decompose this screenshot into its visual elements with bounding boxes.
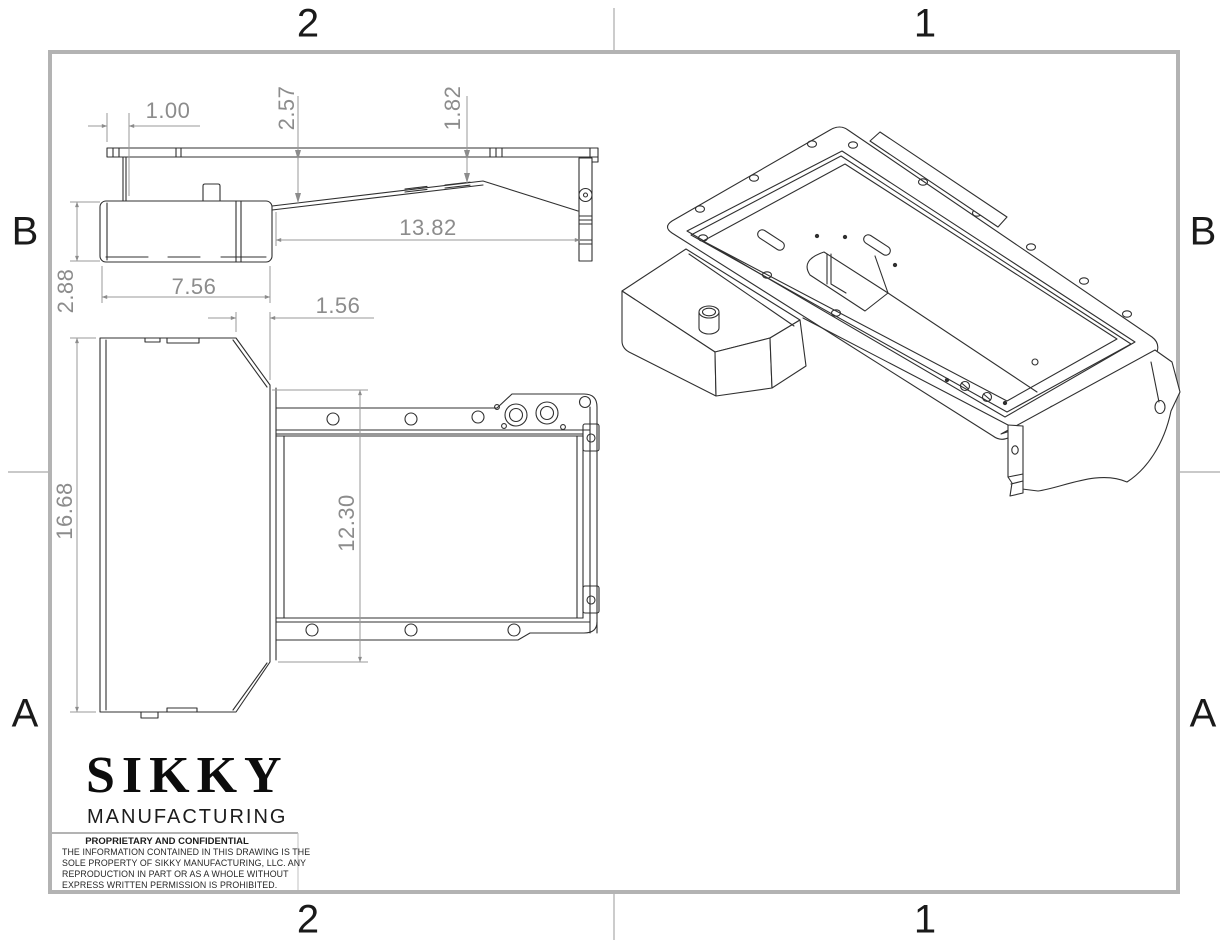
notice-line: THE INFORMATION CONTAINED IN THIS DRAWIN… (62, 847, 310, 858)
zone-label-left-a: A (12, 692, 39, 737)
dim-1-82: 1.82 (440, 86, 466, 131)
drawing-sheet: 2 1 2 1 B A B A 1.00 2.57 1.82 13.82 2.8… (0, 0, 1228, 948)
isometric-view (622, 127, 1180, 496)
dim-1-56: 1.56 (316, 293, 361, 319)
zone-label-top-2: 2 (297, 2, 319, 47)
mount-bracket (1008, 425, 1023, 496)
proprietary-notice-title: PROPRIETARY AND CONFIDENTIAL (58, 836, 276, 847)
company-division-label: MANUFACTURING (87, 806, 287, 829)
dim-16-68: 16.68 (52, 482, 78, 540)
notice-line: EXPRESS WRITTEN PERMISSION IS PROHIBITED… (62, 880, 310, 891)
notice-line: REPRODUCTION IN PART OR AS A WHOLE WITHO… (62, 869, 310, 880)
dim-1-00: 1.00 (146, 98, 191, 124)
dim-12-30: 12.30 (334, 494, 360, 552)
dim-2-88: 2.88 (53, 269, 79, 314)
dim-7-56: 7.56 (172, 274, 217, 300)
dimension-lines (70, 96, 580, 712)
zone-label-right-b: B (1190, 210, 1217, 255)
company-logo: SIKKY (86, 746, 289, 805)
notice-line: SOLE PROPERTY OF SIKKY MANUFACTURING, LL… (62, 858, 310, 869)
zone-label-right-a: A (1190, 692, 1217, 737)
zone-label-bottom-1: 1 (914, 898, 936, 943)
zone-label-top-1: 1 (914, 2, 936, 47)
side-view (100, 148, 598, 262)
zone-label-left-b: B (12, 210, 39, 255)
dim-13-82: 13.82 (399, 215, 457, 241)
proprietary-notice-body: THE INFORMATION CONTAINED IN THIS DRAWIN… (62, 847, 310, 891)
zone-label-bottom-2: 2 (297, 898, 319, 943)
dim-2-57: 2.57 (274, 86, 300, 131)
